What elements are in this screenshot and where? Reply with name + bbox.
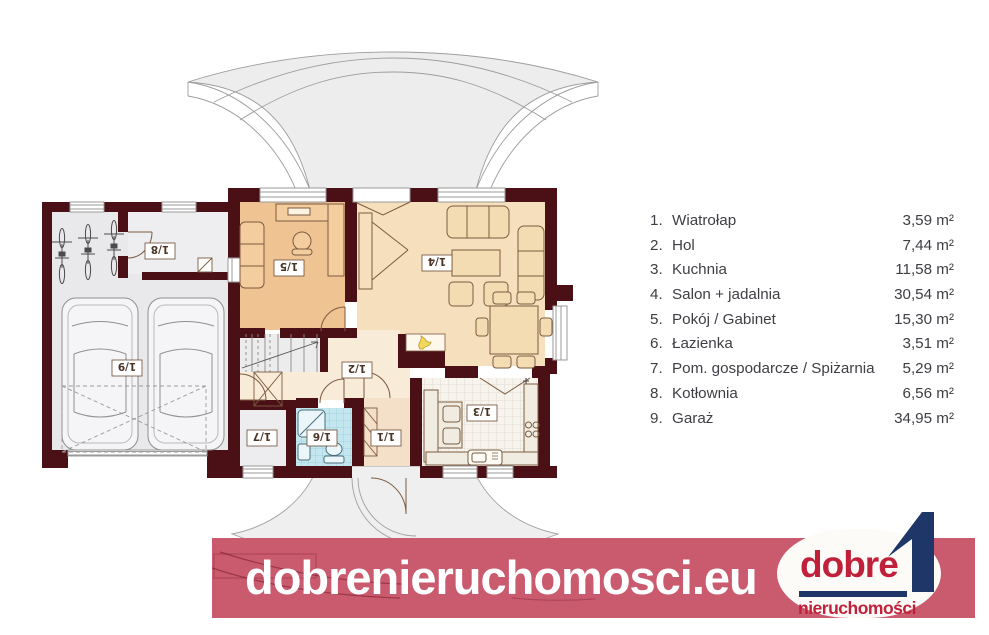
legend-number: 1.	[650, 212, 672, 229]
floor-drain-symbol	[198, 258, 212, 272]
banner-url-text: dobrenieruchomosci.eu	[245, 550, 757, 606]
legend-room-area: 5,29 m²	[903, 360, 955, 377]
legend-number: 5.	[650, 311, 672, 328]
legend-number: 8.	[650, 385, 672, 402]
legend-row: 3.Kuchnia11,58 m²	[650, 261, 954, 286]
room-label: 1/5	[280, 260, 298, 272]
logo-word-bottom: nieruchomości	[798, 598, 916, 619]
car-icon	[148, 298, 224, 450]
legend-number: 2.	[650, 237, 672, 254]
legend-row: 8.Kotłownia6,56 m²	[650, 385, 954, 410]
room-label: 1/6	[313, 430, 331, 442]
room-label: 1/8	[151, 243, 169, 255]
legend-row: 6.Łazienka3,51 m²	[650, 335, 954, 360]
legend-room-area: 3,59 m²	[903, 212, 955, 229]
legend-room-name: Hol	[672, 237, 903, 254]
legend-number: 7.	[650, 360, 672, 377]
legend-room-name: Wiatrołap	[672, 212, 903, 229]
fireplace	[406, 334, 445, 351]
room-label: 1/7	[253, 430, 271, 442]
legend-room-name: Kotłownia	[672, 385, 903, 402]
legend-row: 7.Pom. gospodarcze / Spiżarnia5,29 m²	[650, 360, 954, 385]
legend-number: 6.	[650, 335, 672, 352]
sink-icon	[468, 450, 502, 465]
legend-room-area: 11,58 m²	[895, 261, 954, 278]
room-legend: 1.Wiatrołap3,59 m² 2.Hol7,44 m² 3.Kuchni…	[650, 212, 954, 434]
legend-room-name: Kuchnia	[672, 261, 895, 278]
legend-number: 9.	[650, 410, 672, 427]
legend-room-name: Pom. gospodarcze / Spiżarnia	[672, 360, 903, 377]
room-label: 1/9	[118, 360, 136, 372]
room-label: 1/3	[473, 405, 491, 417]
legend-room-area: 34,95 m²	[894, 410, 954, 427]
legend-number: 3.	[650, 261, 672, 278]
legend-number: 4.	[650, 286, 672, 303]
page: 1/1 1/2 1/3 1/4 1/5 1/6 1/7 1/8 1/9 1.Wi…	[0, 0, 989, 635]
legend-row: 9.Garaż34,95 m²	[650, 410, 954, 435]
legend-row: 5.Pokój / Gabinet15,30 m²	[650, 311, 954, 336]
room-label: 1/1	[377, 430, 395, 442]
legend-row: 4.Salon + jadalnia30,54 m²	[650, 286, 954, 311]
legend-room-area: 3,51 m²	[903, 335, 955, 352]
legend-room-area: 6,56 m²	[903, 385, 955, 402]
legend-room-area: 15,30 m²	[894, 311, 954, 328]
legend-room-name: Garaż	[672, 410, 894, 427]
legend-row: 2.Hol7,44 m²	[650, 237, 954, 262]
terrace-arcs-top	[188, 52, 598, 190]
legend-room-name: Pokój / Gabinet	[672, 311, 894, 328]
legend-room-area: 7,44 m²	[903, 237, 955, 254]
legend-room-area: 30,54 m²	[894, 286, 954, 303]
room-label: 1/2	[348, 362, 366, 374]
legend-room-name: Łazienka	[672, 335, 903, 352]
legend-row: 1.Wiatrołap3,59 m²	[650, 212, 954, 237]
legend-room-name: Salon + jadalnia	[672, 286, 894, 303]
logo-one-icon	[880, 505, 942, 597]
room-label: 1/4	[428, 255, 446, 267]
